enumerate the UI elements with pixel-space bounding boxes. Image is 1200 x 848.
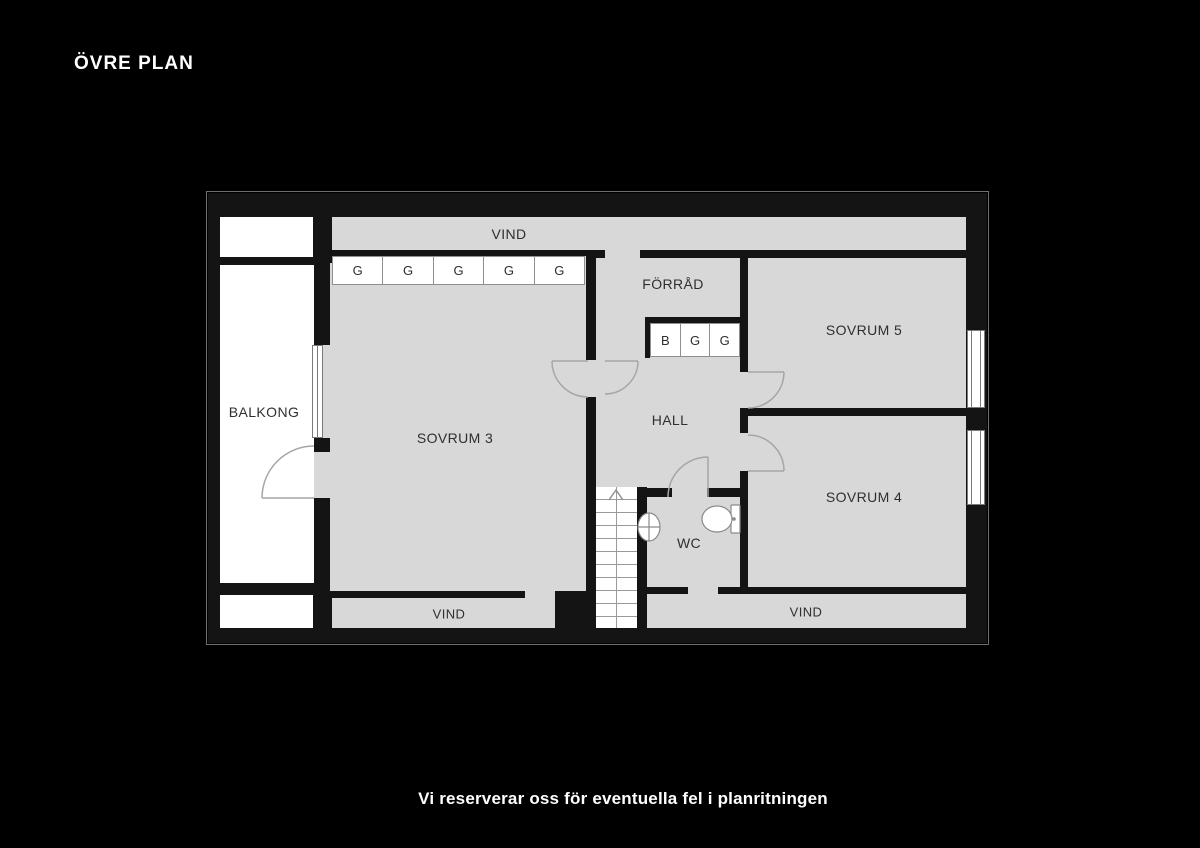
floorplan-page: ÖVRE PLAN G G G G G B G [0, 0, 1200, 848]
door-swing-overlay [0, 0, 1200, 848]
room-label-hall: HALL [652, 412, 689, 428]
room-label-vind-bottom-right: VIND [790, 605, 823, 620]
stairs-up-arrow-icon [609, 490, 623, 500]
room-label-wc: WC [677, 535, 701, 551]
toilet-icon [702, 505, 740, 533]
room-label-vind-bottom-left: VIND [433, 607, 466, 622]
room-label-sovrum5: SOVRUM 5 [826, 322, 902, 338]
room-label-sovrum3: SOVRUM 3 [417, 430, 493, 446]
door-arc-sovrum3 [552, 361, 588, 397]
room-label-vind-top: VIND [491, 226, 526, 242]
sink-icon [638, 513, 660, 541]
door-arc-balcony [262, 446, 314, 498]
door-arc-wc [668, 457, 708, 497]
door-arc-sovrum5 [748, 372, 784, 408]
room-label-balkong: BALKONG [229, 404, 300, 420]
disclaimer-caption: Vi reserverar oss för eventuella fel i p… [363, 789, 883, 809]
door-arc-sovrum4 [748, 435, 784, 471]
room-label-sovrum4: SOVRUM 4 [826, 489, 902, 505]
door-arc-forrad [605, 361, 638, 394]
room-label-forrad: FÖRRÅD [642, 276, 704, 292]
